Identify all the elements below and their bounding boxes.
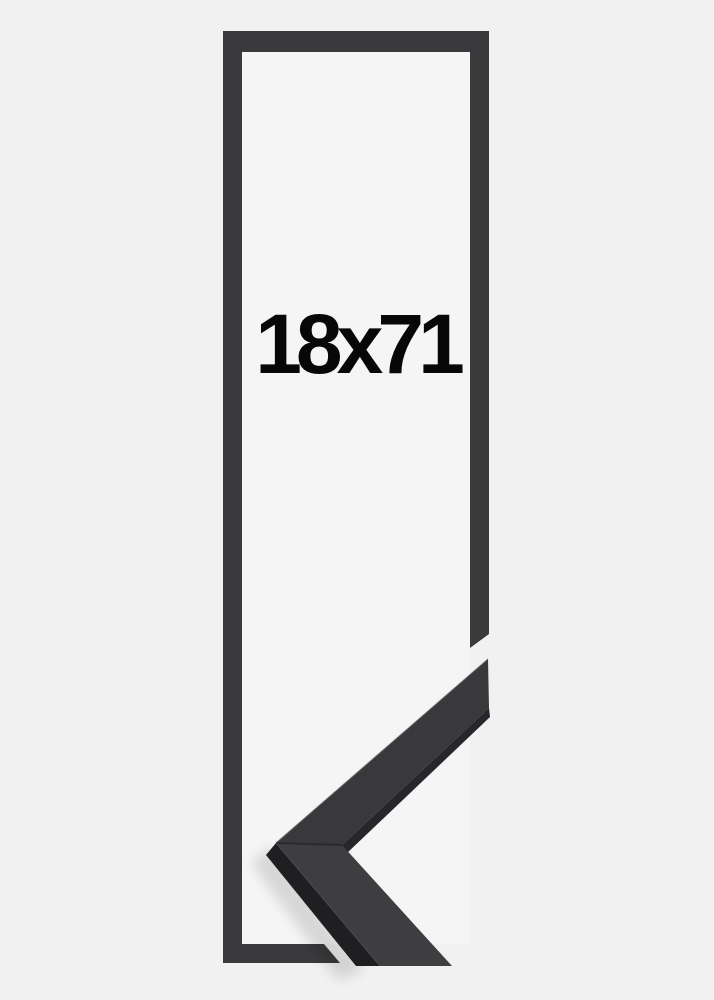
- size-label: 18x71: [255, 297, 463, 391]
- product-image: 18x71: [0, 0, 714, 1000]
- frame-mockup-graphic: 18x71: [0, 0, 714, 1000]
